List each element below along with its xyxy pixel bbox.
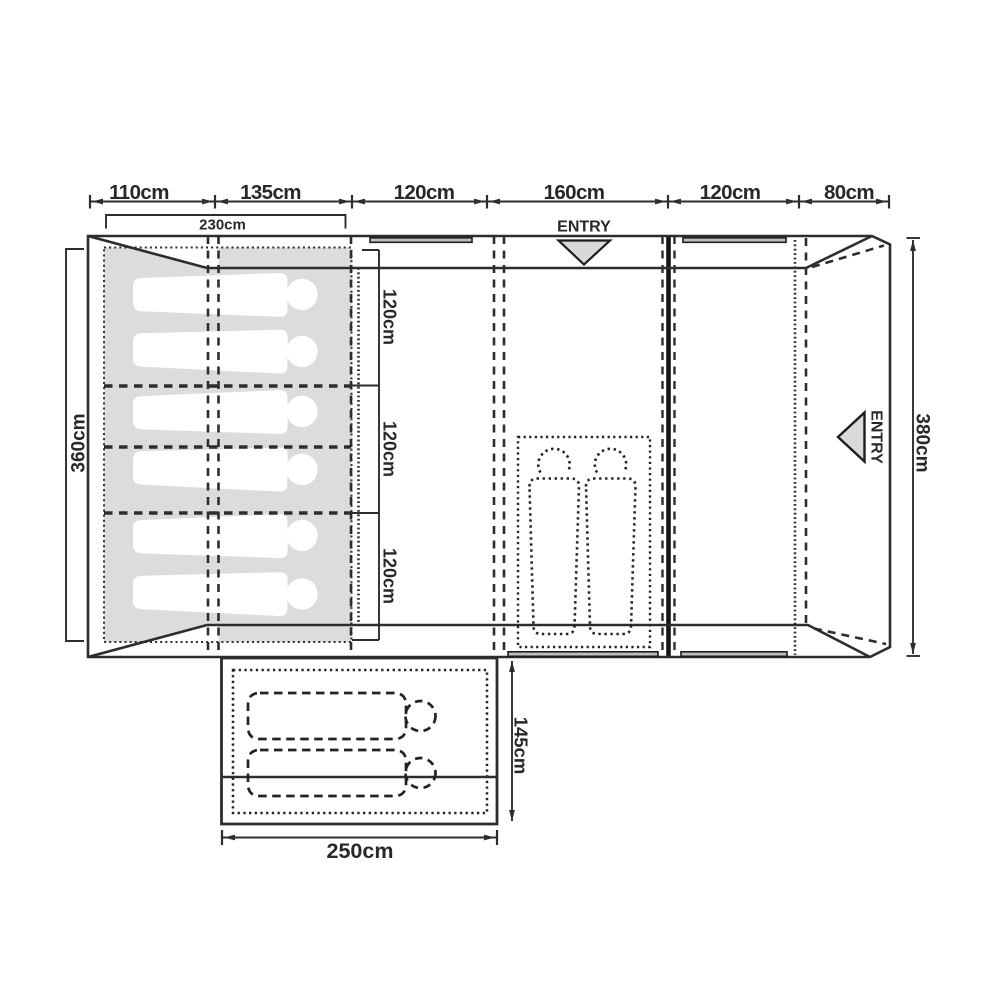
svg-text:160cm: 160cm [544,181,605,204]
svg-text:ENTRY: ENTRY [557,219,611,236]
svg-text:110cm: 110cm [109,181,169,204]
svg-text:120cm: 120cm [700,181,761,204]
svg-text:120cm: 120cm [380,421,400,477]
svg-text:145cm: 145cm [511,717,532,775]
svg-text:230cm: 230cm [199,217,246,234]
svg-text:80cm: 80cm [824,181,874,204]
svg-text:120cm: 120cm [380,548,400,604]
svg-text:360cm: 360cm [69,413,90,472]
svg-text:250cm: 250cm [327,839,394,863]
svg-text:120cm: 120cm [380,289,400,345]
svg-text:ENTRY: ENTRY [868,410,885,464]
svg-text:380cm: 380cm [912,413,933,472]
svg-text:135cm: 135cm [240,181,301,204]
svg-text:120cm: 120cm [394,181,455,204]
